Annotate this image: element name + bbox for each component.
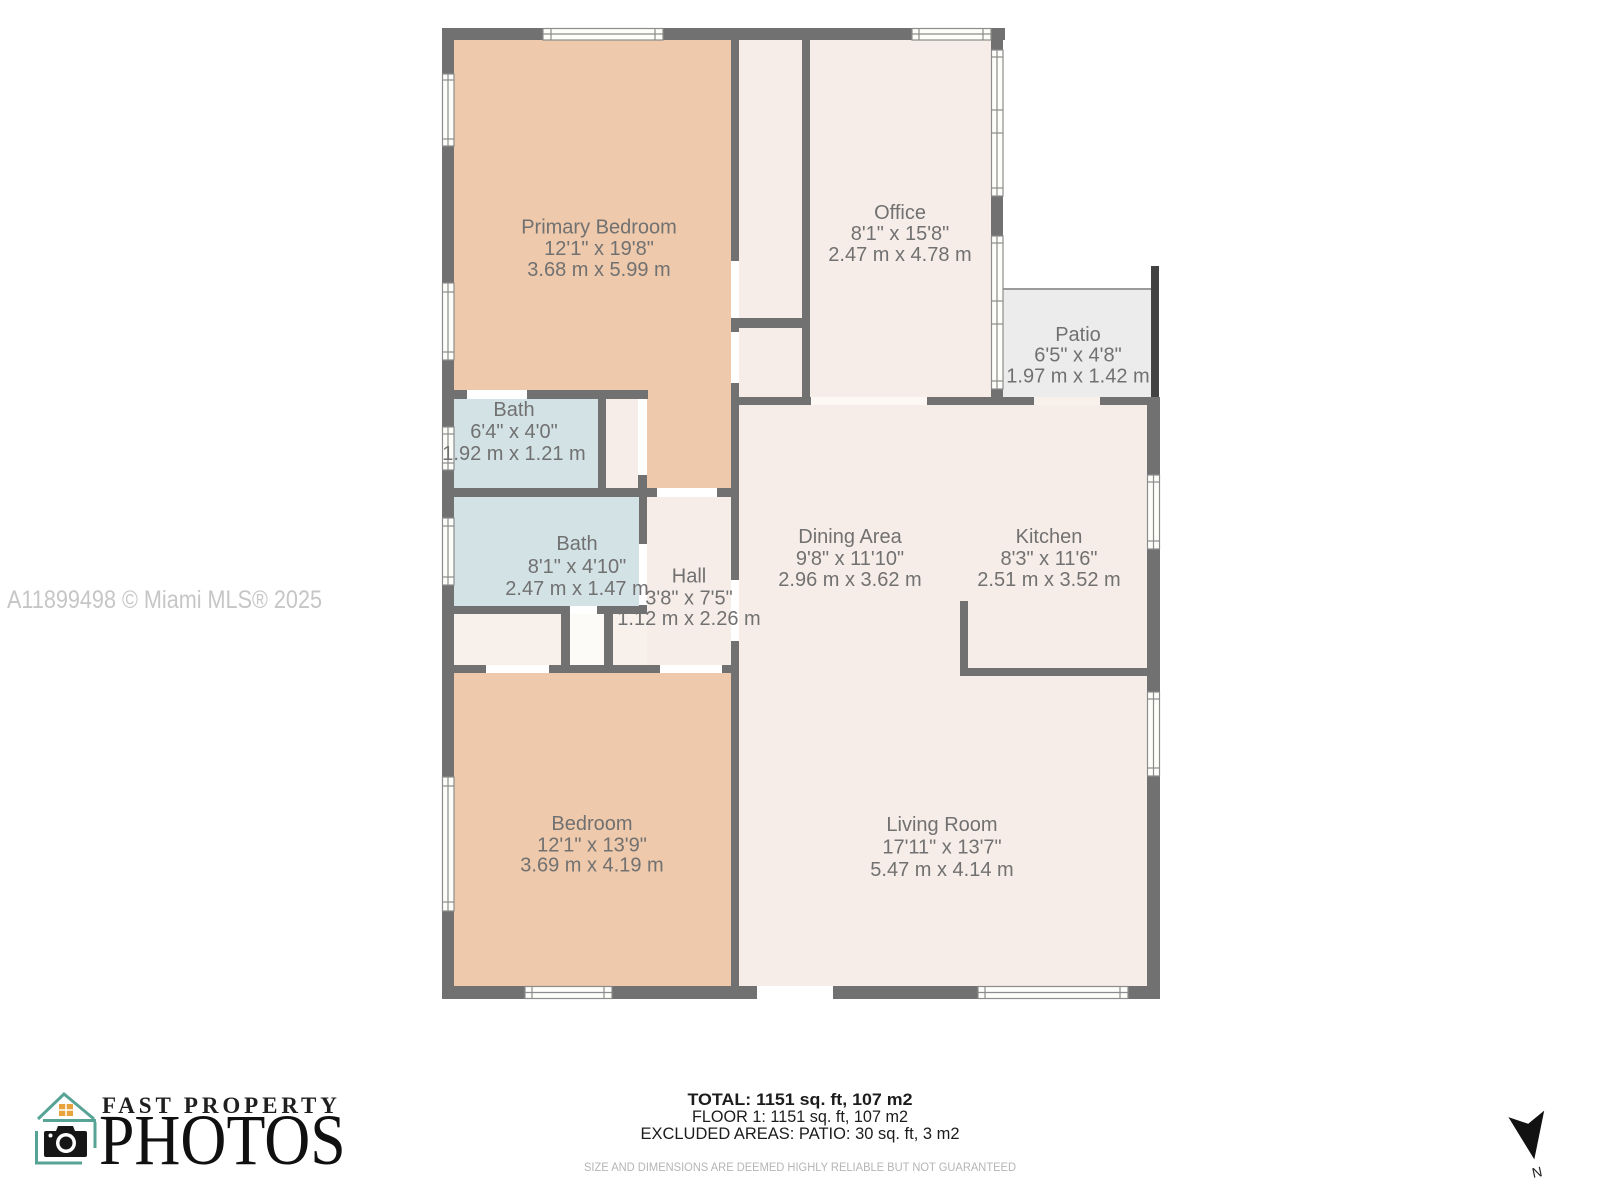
- svg-text:17'11" x 13'7": 17'11" x 13'7": [882, 837, 1001, 859]
- svg-text:Primary Bedroom: Primary Bedroom: [521, 217, 677, 239]
- svg-text:3'8" x 7'5": 3'8" x 7'5": [645, 588, 732, 610]
- svg-text:A11899498 © Miami MLS® 2025: A11899498 © Miami MLS® 2025: [7, 586, 322, 614]
- svg-text:8'3" x 11'6": 8'3" x 11'6": [1000, 548, 1097, 570]
- svg-text:2.47 m x 4.78 m: 2.47 m x 4.78 m: [828, 244, 971, 266]
- svg-text:Kitchen: Kitchen: [1016, 526, 1083, 548]
- svg-text:PHOTOS: PHOTOS: [99, 1099, 346, 1179]
- svg-text:1.12 m x 2.26 m: 1.12 m x 2.26 m: [617, 608, 760, 630]
- svg-text:6'4" x 4'0": 6'4" x 4'0": [470, 421, 557, 443]
- svg-text:SIZE AND DIMENSIONS ARE DEEMED: SIZE AND DIMENSIONS ARE DEEMED HIGHLY RE…: [584, 1162, 1016, 1174]
- svg-text:Bedroom: Bedroom: [551, 813, 632, 835]
- svg-text:EXCLUDED AREAS: PATIO: 30 sq.: EXCLUDED AREAS: PATIO: 30 sq. ft, 3 m2: [641, 1125, 960, 1143]
- svg-text:Bath: Bath: [556, 533, 597, 555]
- svg-text:12'1" x 19'8": 12'1" x 19'8": [544, 238, 654, 260]
- svg-text:2.51 m x 3.52 m: 2.51 m x 3.52 m: [977, 569, 1120, 591]
- svg-text:9'8" x 11'10": 9'8" x 11'10": [796, 548, 904, 570]
- svg-text:Dining Area: Dining Area: [798, 526, 902, 548]
- svg-text:FLOOR 1: 1151 sq. ft, 107 m2: FLOOR 1: 1151 sq. ft, 107 m2: [692, 1108, 908, 1126]
- svg-text:Bath: Bath: [493, 399, 534, 421]
- svg-text:Patio: Patio: [1055, 324, 1101, 346]
- svg-text:8'1" x 4'10": 8'1" x 4'10": [528, 556, 627, 578]
- svg-text:TOTAL: 1151 sq. ft, 107 m2: TOTAL: 1151 sq. ft, 107 m2: [688, 1090, 913, 1109]
- svg-text:Hall: Hall: [672, 566, 706, 588]
- svg-text:3.68 m x 5.99 m: 3.68 m x 5.99 m: [527, 259, 670, 281]
- svg-text:8'1" x 15'8": 8'1" x 15'8": [851, 223, 950, 245]
- svg-text:3.69 m x 4.19 m: 3.69 m x 4.19 m: [520, 855, 663, 877]
- svg-text:1.97 m x 1.42 m: 1.97 m x 1.42 m: [1006, 366, 1149, 388]
- svg-text:Office: Office: [874, 202, 926, 224]
- svg-text:2.96 m x 3.62 m: 2.96 m x 3.62 m: [778, 569, 921, 591]
- svg-text:6'5" x 4'8": 6'5" x 4'8": [1034, 345, 1121, 367]
- svg-text:Living Room: Living Room: [886, 814, 997, 836]
- svg-text:12'1" x 13'9": 12'1" x 13'9": [537, 835, 647, 857]
- svg-text:1.92 m x 1.21 m: 1.92 m x 1.21 m: [442, 443, 585, 465]
- svg-text:2.47 m x 1.47 m: 2.47 m x 1.47 m: [505, 578, 648, 600]
- svg-text:5.47 m x 4.14 m: 5.47 m x 4.14 m: [870, 859, 1013, 881]
